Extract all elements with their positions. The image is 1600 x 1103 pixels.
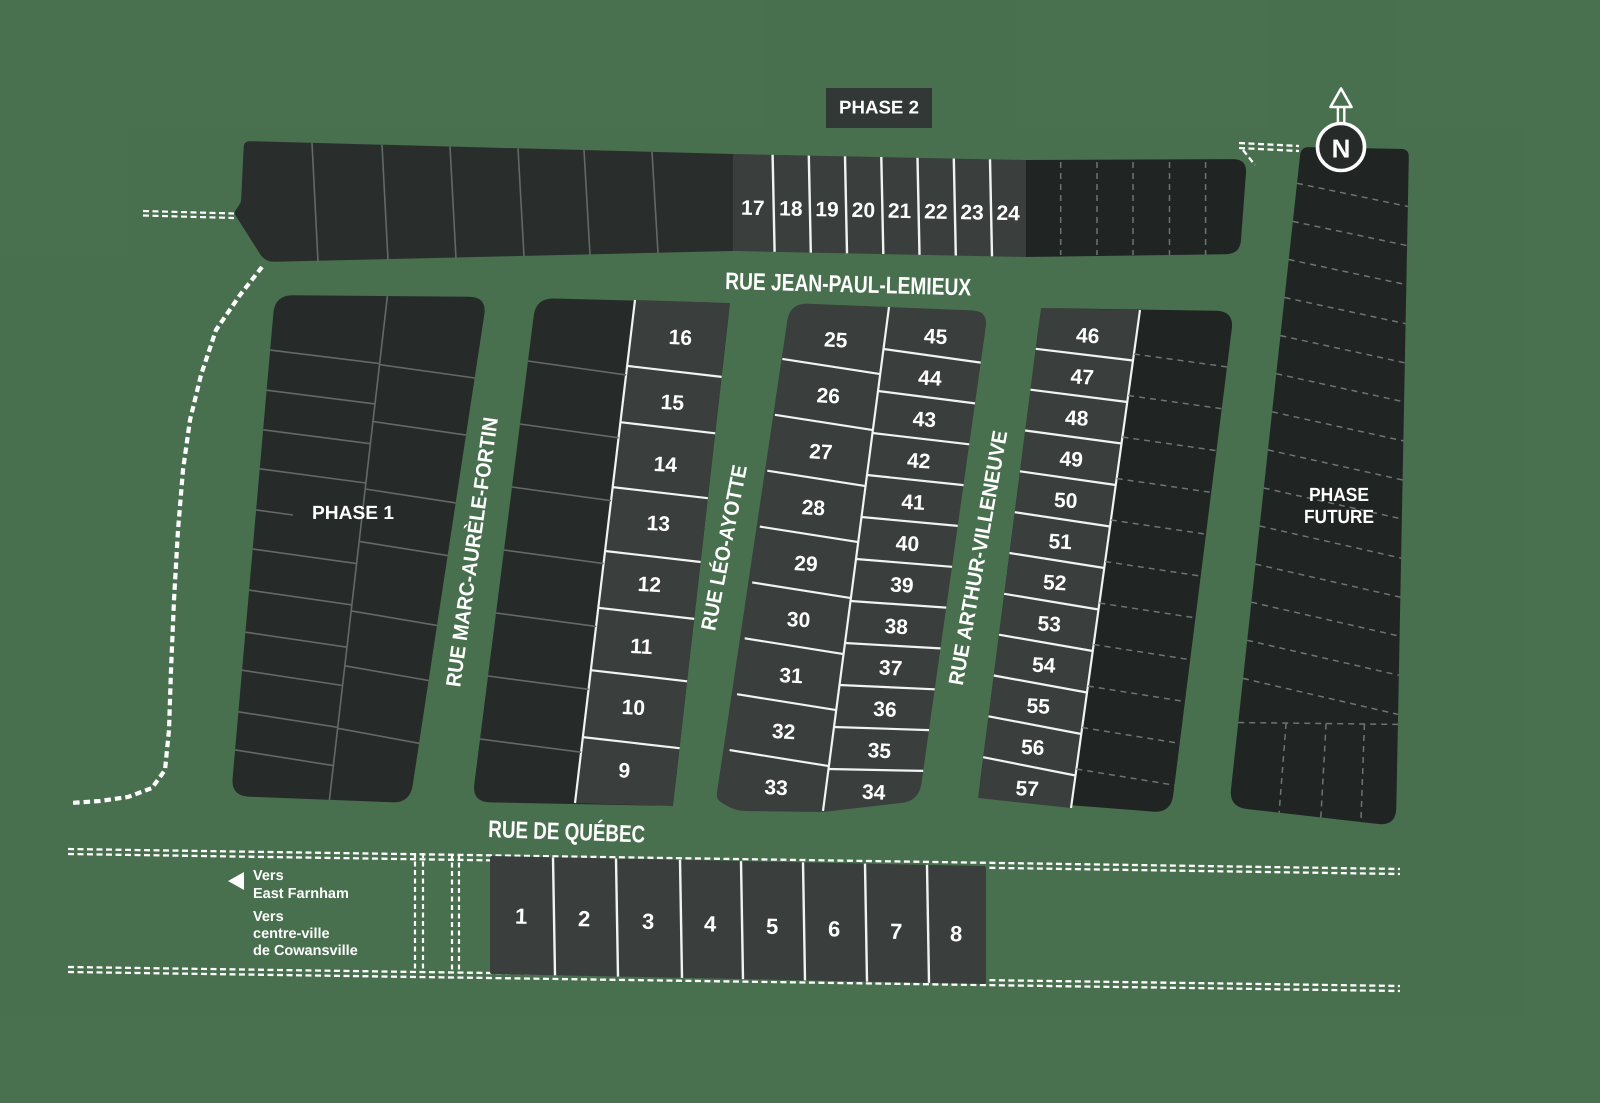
svg-text:57: 57 [1015, 777, 1040, 801]
svg-text:36: 36 [873, 698, 898, 722]
svg-text:6: 6 [828, 916, 841, 941]
svg-text:RUE DE QUÉBEC: RUE DE QUÉBEC [488, 815, 646, 848]
svg-text:15: 15 [660, 391, 685, 415]
svg-text:3: 3 [642, 909, 655, 934]
svg-text:centre-ville: centre-ville [253, 926, 330, 942]
svg-text:38: 38 [884, 615, 909, 639]
svg-text:Vers: Vers [253, 868, 284, 884]
svg-text:39: 39 [890, 574, 915, 598]
svg-text:44: 44 [918, 367, 943, 391]
svg-text:48: 48 [1064, 407, 1089, 431]
svg-text:41: 41 [901, 491, 926, 515]
svg-text:24: 24 [996, 202, 1020, 226]
svg-text:56: 56 [1020, 736, 1045, 760]
svg-text:PHASE 2: PHASE 2 [839, 96, 919, 117]
svg-text:54: 54 [1031, 654, 1056, 678]
svg-text:28: 28 [801, 496, 826, 520]
svg-text:17: 17 [741, 197, 765, 221]
svg-text:20: 20 [851, 199, 875, 223]
svg-text:49: 49 [1059, 448, 1084, 472]
svg-text:53: 53 [1037, 612, 1062, 636]
svg-text:13: 13 [646, 512, 671, 536]
svg-text:14: 14 [653, 453, 678, 477]
svg-text:32: 32 [771, 720, 796, 744]
svg-text:7: 7 [890, 919, 903, 944]
svg-text:FUTURE: FUTURE [1304, 507, 1374, 528]
svg-text:9: 9 [618, 759, 631, 783]
svg-text:55: 55 [1026, 695, 1051, 719]
svg-text:19: 19 [815, 198, 839, 222]
svg-text:35: 35 [867, 739, 892, 763]
svg-text:37: 37 [878, 656, 903, 680]
svg-text:Vers: Vers [253, 909, 284, 925]
svg-text:8: 8 [950, 921, 963, 946]
svg-text:30: 30 [786, 608, 811, 632]
svg-text:43: 43 [912, 408, 937, 432]
svg-text:1: 1 [515, 904, 528, 929]
svg-text:50: 50 [1053, 489, 1078, 513]
svg-text:de Cowansville: de Cowansville [253, 943, 358, 959]
svg-text:22: 22 [924, 200, 948, 224]
svg-text:40: 40 [895, 532, 920, 556]
svg-text:11: 11 [630, 635, 654, 659]
svg-text:29: 29 [794, 552, 819, 576]
svg-text:42: 42 [906, 449, 931, 473]
svg-text:47: 47 [1070, 365, 1095, 389]
svg-text:10: 10 [621, 696, 646, 720]
svg-text:18: 18 [779, 197, 803, 221]
svg-text:33: 33 [764, 776, 789, 800]
svg-text:PHASE 1: PHASE 1 [312, 503, 394, 524]
svg-text:2: 2 [578, 906, 591, 931]
svg-text:45: 45 [923, 325, 948, 349]
svg-text:16: 16 [668, 326, 693, 350]
svg-text:23: 23 [960, 201, 984, 225]
svg-text:46: 46 [1075, 324, 1100, 348]
svg-text:4: 4 [704, 911, 718, 936]
svg-text:PHASE: PHASE [1309, 485, 1369, 506]
svg-text:N: N [1332, 133, 1351, 163]
svg-text:31: 31 [779, 664, 804, 688]
svg-text:25: 25 [823, 328, 848, 352]
svg-text:27: 27 [809, 440, 834, 464]
svg-text:26: 26 [816, 384, 841, 408]
svg-text:51: 51 [1048, 530, 1073, 554]
svg-text:East Farnham: East Farnham [253, 886, 349, 902]
svg-text:5: 5 [766, 914, 779, 939]
svg-text:12: 12 [637, 573, 662, 597]
svg-text:52: 52 [1042, 571, 1067, 595]
svg-text:21: 21 [888, 200, 912, 224]
svg-text:34: 34 [861, 781, 886, 805]
